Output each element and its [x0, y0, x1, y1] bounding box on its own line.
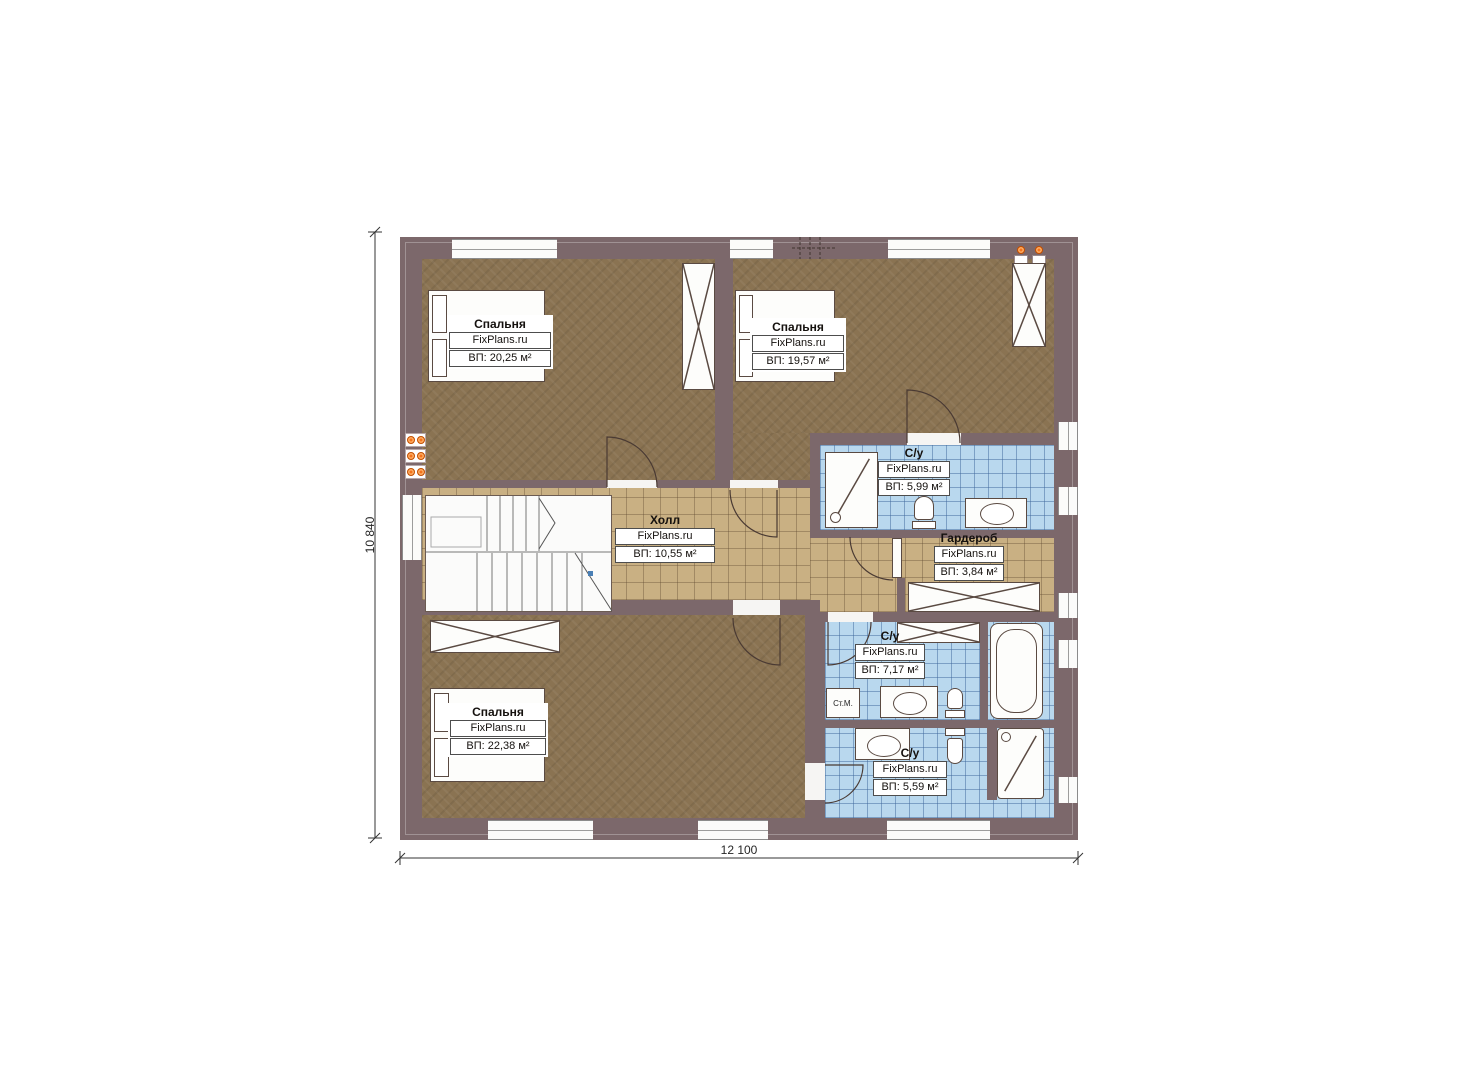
window [888, 239, 990, 259]
room-area: ВП: 22,38 м² [450, 738, 546, 755]
dimension-label-horizontal: 12 100 [704, 843, 774, 857]
brand-label: FixPlans.ru [878, 461, 950, 478]
room-name: Спальня [752, 320, 844, 334]
bathtub [990, 623, 1043, 719]
toilet [910, 496, 938, 529]
sink [880, 686, 938, 718]
wardrobe-cabinet [430, 620, 560, 653]
brand-label: FixPlans.ru [449, 332, 551, 349]
room-label-bathroom-mid: С/у FixPlans.ru ВП: 7,17 м² [855, 629, 925, 679]
wall [810, 445, 820, 538]
wardrobe-cabinet [682, 263, 715, 390]
brand-label: FixPlans.ru [615, 528, 715, 545]
dimension-label-vertical: 10 840 [363, 500, 377, 570]
room-label-hall: Холл FixPlans.ru ВП: 10,55 м² [615, 513, 715, 563]
brand-label: FixPlans.ru [752, 335, 844, 352]
corridor-floor [810, 538, 897, 612]
room-area: ВП: 20,25 м² [449, 350, 551, 367]
toilet [943, 688, 967, 718]
wardrobe-cabinet [1012, 263, 1046, 347]
window [698, 820, 768, 840]
washing-machine-label: Ст.М. [833, 699, 853, 708]
brand-label: FixPlans.ru [934, 546, 1004, 563]
room-area: ВП: 5,99 м² [878, 479, 950, 496]
wardrobe-cabinet [908, 582, 1040, 612]
room-label-bedroom-top-left: Спальня FixPlans.ru ВП: 20,25 м² [447, 315, 553, 369]
room-bedroom-top-right-floor [733, 433, 810, 480]
sink [965, 498, 1027, 528]
brand-label: FixPlans.ru [855, 644, 925, 661]
window [730, 239, 773, 259]
door-opening [607, 480, 657, 488]
door-opening [805, 763, 825, 800]
shower [825, 452, 878, 528]
room-label-bathroom-bottom: С/у FixPlans.ru ВП: 5,59 м² [873, 746, 947, 796]
wall [810, 530, 1054, 538]
brand-label: FixPlans.ru [450, 720, 546, 737]
room-area: ВП: 19,57 м² [752, 353, 844, 370]
wall [897, 578, 905, 612]
window [488, 820, 593, 840]
room-name: Гардероб [934, 531, 1004, 545]
room-area: ВП: 5,59 м² [873, 779, 947, 796]
door-opening [733, 600, 780, 615]
stairs [425, 495, 612, 612]
shower [997, 728, 1044, 799]
room-area: ВП: 7,17 м² [855, 662, 925, 679]
room-label-bedroom-top-right: Спальня FixPlans.ru ВП: 19,57 м² [750, 318, 846, 372]
room-name: Спальня [449, 317, 551, 331]
room-area: ВП: 3,84 м² [934, 564, 1004, 581]
wall [980, 620, 988, 720]
door-opening [730, 480, 778, 488]
chimney-marks [792, 237, 836, 259]
radiator-icon [405, 449, 426, 463]
radiator-icon [405, 433, 426, 447]
window [1058, 487, 1078, 515]
floor-plan-page: Ст.М. [0, 0, 1474, 1080]
window [1058, 593, 1078, 618]
room-label-bedroom-bottom: Спальня FixPlans.ru ВП: 22,38 м² [448, 703, 548, 757]
floor-plan: Ст.М. [400, 237, 1078, 840]
wall [715, 259, 733, 480]
radiator-icon [405, 465, 426, 479]
window [402, 495, 422, 560]
window [452, 239, 557, 259]
wall [825, 720, 1054, 728]
door-opening [907, 433, 961, 445]
room-label-wardrobe: Гардероб FixPlans.ru ВП: 3,84 м² [934, 531, 1004, 581]
window [1058, 640, 1078, 668]
door-leaf [892, 538, 902, 578]
brand-label: FixPlans.ru [873, 761, 947, 778]
window [1058, 422, 1078, 450]
room-area: ВП: 10,55 м² [615, 546, 715, 563]
wall [987, 728, 997, 800]
room-label-bathroom-top: С/у FixPlans.ru ВП: 5,99 м² [878, 446, 950, 496]
window [887, 820, 990, 840]
room-name: С/у [878, 446, 950, 460]
window [1058, 777, 1078, 803]
room-name: Спальня [450, 705, 546, 719]
door-opening [828, 612, 873, 622]
washing-machine: Ст.М. [826, 688, 860, 718]
room-name: С/у [855, 629, 925, 643]
room-name: С/у [873, 746, 947, 760]
room-name: Холл [615, 513, 715, 527]
